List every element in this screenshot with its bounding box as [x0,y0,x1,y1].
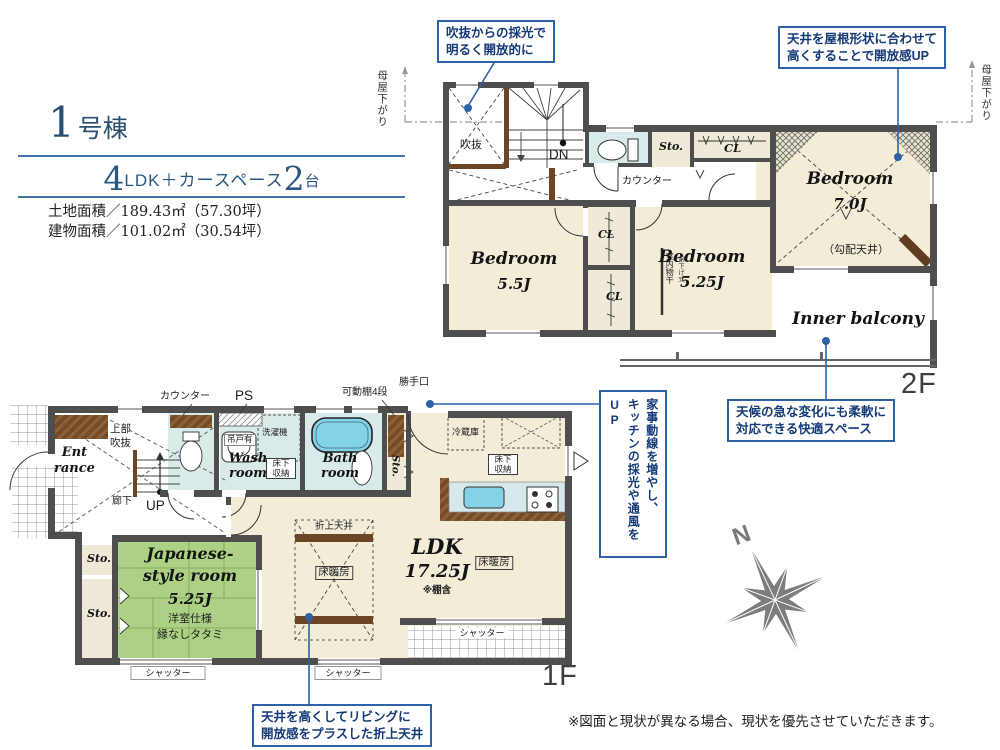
callout-sloped-ceiling: 天井を屋根形状に合わせて 高くすることで開放感UP [778,26,946,69]
bath-room-label: Bath room [312,452,368,482]
upper-void-label: 上部 吹抜 [110,423,131,450]
floor-2f-plan [402,58,975,400]
shutter-right-label: シャッター [455,628,508,638]
callout-void-light-line2: 明るく開放的に [446,42,546,59]
back-door-label: 勝手口 [399,377,429,389]
inner-balcony-label: Inner balcony [792,310,924,330]
callout-kitchen-flow-line2: キッチンの採光や通風をUP [605,398,642,550]
title-rule-bottom [18,196,405,198]
closet-upper-label: CL [598,229,615,242]
upper-void-line2: 吹抜 [110,437,131,451]
land-area: 土地面積／189.43㎡（57.30坪） [48,204,271,221]
callout-coffered-ceiling-line2: 開放感をプラスした折上天井 [261,726,423,743]
entrance-line2: rance [54,461,95,477]
floorplan-page: 1号棟 4LDK＋カースペース2台 土地面積／189.43㎡（57.30坪） 建… [0,0,1000,750]
storage-2f-label: Sto. [659,141,683,154]
japanese-room-line2: style room [143,567,237,585]
bedroom3-note: （勾配天井） [823,244,889,257]
ps-label: PS [235,388,253,404]
hallway-label: 廊下 [112,496,132,508]
moya-sagari-right: 母屋下がり [980,64,992,122]
void-label: 吹抜 [460,139,482,152]
storage-lower-label: Sto. [87,608,111,621]
dn-label: DN [549,147,569,163]
moya-sagari-left: 母屋下がり [376,70,388,128]
callout-kitchen-flow-line1: 家事動線を増やし、 [642,398,661,550]
floor-2f-tag: 2F [901,368,937,401]
closet-lower-label: CL [606,291,623,304]
disclaimer: ※図面と現状が異なる場合、現状を優先させていただきます。 [568,714,942,730]
storage-pantry-label: Sto. [389,455,401,477]
ldk-note: ※棚含 [423,586,451,597]
closet-top-label: CL [724,142,741,155]
laundry-pole-type-label: 吊下げ式 [676,256,683,282]
underfloor-storage-kitchen-label: 床下収納 [488,454,518,475]
japanese-room-note2: 縁なしタタミ [157,629,223,642]
callout-inner-balcony: 天候の急な変化にも柔軟に 対応できる快適スペース [727,399,895,442]
unit-number: 1 [48,98,75,147]
hanging-cupboard-label: 吊戸有 [224,434,256,446]
unit-number-suffix: 号棟 [78,115,128,143]
callout-sloped-ceiling-line2: 高くすることで開放感UP [787,48,937,65]
title-block: 1号棟 [48,98,128,147]
underfloor-storage-wash-label: 床下収納 [266,458,296,479]
callout-inner-balcony-line2: 対応できる快適スペース [736,421,886,438]
up-label: UP [146,498,165,514]
bedroom3-size: 7.0J [833,196,866,213]
movable-shelf-label: 可動棚4段 [342,387,388,399]
callout-void-light-line1: 吹抜からの採光で [446,25,546,42]
ldk-size: 17.25J [405,562,470,583]
callout-kitchen-flow: 家事動線を増やし、 キッチンの採光や通風をUP [599,390,667,558]
coffered-label: 折上天井 [313,522,355,533]
callout-inner-balcony-line1: 天候の急な変化にも柔軟に [736,404,886,421]
washer-label: 洗濯機 [262,428,288,438]
shutter-center-label: シャッター [314,666,381,680]
bedroom2-size: 5.25J [680,274,724,291]
shutter-left-label: シャッター [130,666,205,680]
upper-void-line1: 上部 [110,423,131,437]
plan-cars-unit: 台 [305,173,320,190]
plan-rooms-count: 4 [103,159,124,198]
bedroom1-name: Bedroom [471,250,558,270]
counter-1f-label: カウンター [160,391,210,403]
plan-summary: 4LDK＋カースペース2台 [18,159,405,198]
japanese-room-size: 5.25J [168,591,212,608]
floor-1f-tag: 1F [542,660,578,693]
floor-heating-left-label: 床暖房 [315,566,353,580]
laundry-pole-label: 室内物干 [665,252,674,284]
plan-cars-count: 2 [284,159,305,198]
storage-upper-label: Sto. [87,553,111,566]
title-rule-top [18,155,405,157]
building-area: 建物面積／101.02㎡（30.54坪） [48,224,271,241]
fridge-label: 冷蔵庫 [452,427,479,437]
callout-void-light: 吹抜からの採光で 明るく開放的に [437,20,555,63]
entrance-label: Ent rance [54,445,95,476]
callout-coffered-ceiling-line1: 天井を高くしてリビングに [261,709,423,726]
ldk-name: LDK [411,535,462,559]
japanese-room-note1: 洋室仕様 [168,613,212,626]
bedroom3-name: Bedroom [807,170,894,190]
japanese-room-line1: Japanese- [146,545,233,563]
counter-2f-label: カウンター [622,176,672,188]
compass-rose [698,523,852,677]
callout-coffered-ceiling: 天井を高くしてリビングに 開放感をプラスした折上天井 [252,704,432,747]
bedroom1-size: 5.5J [497,276,530,293]
floor-heating-right-label: 床暖房 [475,556,513,570]
callout-sloped-ceiling-line1: 天井を屋根形状に合わせて [787,31,937,48]
plan-type: LDK＋カースペース [124,171,283,190]
entrance-line1: Ent [54,445,95,461]
